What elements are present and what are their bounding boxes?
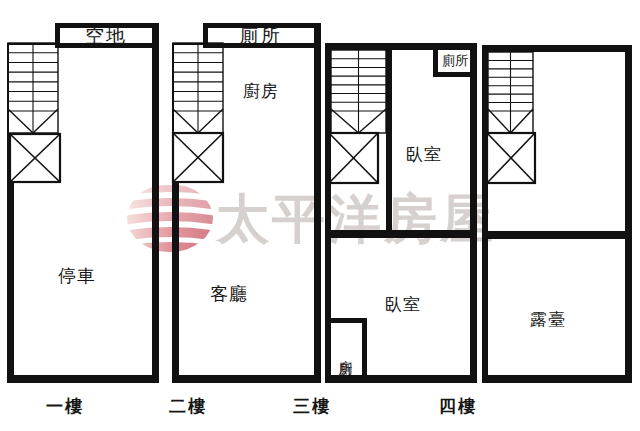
room-label-parking: 停車 xyxy=(58,266,96,287)
floor-label-4f: 四樓 xyxy=(439,397,477,417)
room-label-bedroom-3f-front: 臥室 xyxy=(406,145,442,165)
floor2-staircase-symbol xyxy=(173,43,223,133)
floor1-walls xyxy=(7,23,159,383)
floor-label-3f: 三樓 xyxy=(293,397,331,417)
room-label-terrace: 露臺 xyxy=(530,310,566,330)
room-label-bedroom-3f-rear: 臥室 xyxy=(385,295,421,315)
floor3-staircase-symbol xyxy=(331,50,386,133)
room-label-toilet-3f-top: 廁所 xyxy=(442,54,468,69)
floorplan-canvas: 太平洋房屋 xyxy=(0,0,640,431)
floorplan-drawing xyxy=(0,0,640,431)
floor4-staircase-symbol xyxy=(488,52,533,133)
floor1-elevator-shaft-symbol xyxy=(10,134,60,182)
floor-label-1f: 一樓 xyxy=(46,397,84,417)
room-label-toilet-2f: 廁所 xyxy=(240,25,282,47)
room-label-kitchen: 廚房 xyxy=(243,82,279,102)
floor2-walls xyxy=(172,23,321,383)
floor4-walls xyxy=(482,45,632,383)
room-label-vacant-lot: 空地 xyxy=(85,25,127,47)
floor1-staircase-symbol xyxy=(8,43,58,133)
floor2-elevator-shaft-symbol xyxy=(173,133,223,182)
floor4-elevator-shaft-symbol xyxy=(487,133,535,183)
floor3-elevator-shaft-symbol xyxy=(329,133,378,183)
room-label-toilet-3f-bottom: 廁所 xyxy=(338,348,354,352)
room-label-living-room: 客廳 xyxy=(210,284,248,305)
floor-label-2f: 二樓 xyxy=(169,397,207,417)
